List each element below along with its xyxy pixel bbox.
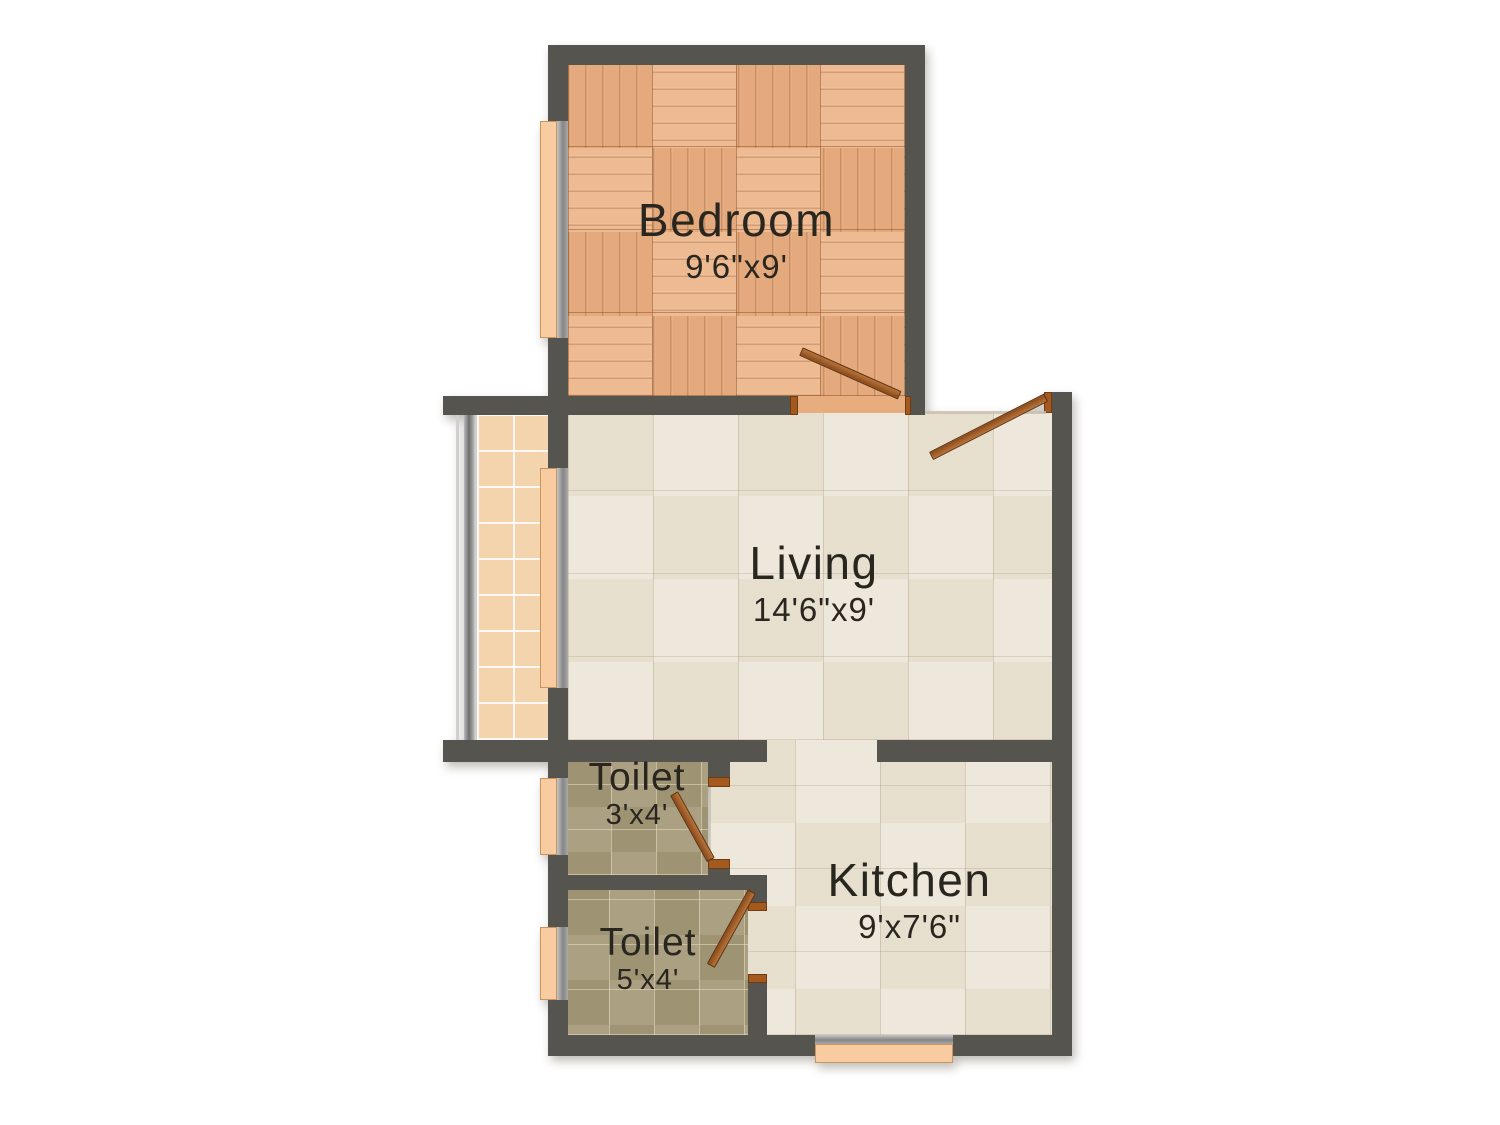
bedroom-door-jamb-left bbox=[790, 396, 798, 415]
bedroom-window bbox=[540, 121, 557, 338]
living-balcony-window bbox=[540, 468, 557, 688]
floor-plan-drawing: Bedroom 9'6"x9' Living 14'6"x9' Toilet 3… bbox=[0, 0, 1500, 1125]
bedroom-name: Bedroom bbox=[638, 196, 835, 246]
wall-toilet-large-right-lower bbox=[748, 982, 767, 1035]
toilet-large-window bbox=[540, 927, 557, 1000]
living-label: Living 14'6"x9' bbox=[568, 539, 1060, 627]
toilet-small-name: Toilet bbox=[588, 757, 685, 799]
bedroom-dims: 9'6"x9' bbox=[685, 249, 788, 285]
toilet-small-window bbox=[540, 778, 557, 855]
toilet-small-dims: 3'x4' bbox=[606, 800, 669, 831]
bedroom-door-jamb-right bbox=[905, 396, 911, 415]
toilet-small-door-jamb-bottom bbox=[708, 859, 730, 869]
kitchen-name: Kitchen bbox=[828, 856, 992, 906]
balcony-railing-outer-line bbox=[456, 413, 459, 740]
floor-plan: Bedroom 9'6"x9' Living 14'6"x9' Toilet 3… bbox=[0, 0, 1500, 1125]
living-name: Living bbox=[749, 539, 878, 589]
wall-right-outer bbox=[1052, 392, 1072, 1056]
toilet-small-door-jamb-top bbox=[708, 777, 730, 787]
wall-living-top bbox=[443, 396, 798, 415]
wall-kitchen-top-stub bbox=[877, 740, 1052, 762]
kitchen-dims: 9'x7'6" bbox=[858, 909, 961, 945]
toilet-large-label: Toilet 5'x4' bbox=[564, 922, 732, 996]
kitchen-window bbox=[815, 1044, 953, 1063]
bedroom-window-frame bbox=[557, 121, 568, 338]
wall-bottom-outer bbox=[548, 1035, 1072, 1056]
toilet-small-label: Toilet 3'x4' bbox=[566, 757, 708, 831]
balcony-railing-inner-line bbox=[475, 413, 477, 740]
kitchen-window-frame bbox=[815, 1035, 953, 1044]
balcony-railing-bar bbox=[464, 413, 474, 740]
toilet-large-name: Toilet bbox=[599, 922, 696, 964]
toilet-large-door-jamb-top bbox=[748, 902, 767, 911]
living-balcony-window-frame bbox=[557, 468, 568, 688]
toilet-large-dims: 5'x4' bbox=[617, 965, 680, 996]
wall-bedroom-right bbox=[905, 45, 925, 415]
wall-toilet-divider bbox=[548, 875, 767, 890]
kitchen-label: Kitchen 9'x7'6" bbox=[767, 856, 1052, 944]
wall-bedroom-top bbox=[548, 45, 925, 65]
balcony-floor bbox=[477, 413, 548, 740]
bedroom-label: Bedroom 9'6"x9' bbox=[568, 196, 905, 284]
living-dims: 14'6"x9' bbox=[753, 592, 875, 628]
toilet-large-door-jamb-bottom bbox=[748, 974, 767, 983]
